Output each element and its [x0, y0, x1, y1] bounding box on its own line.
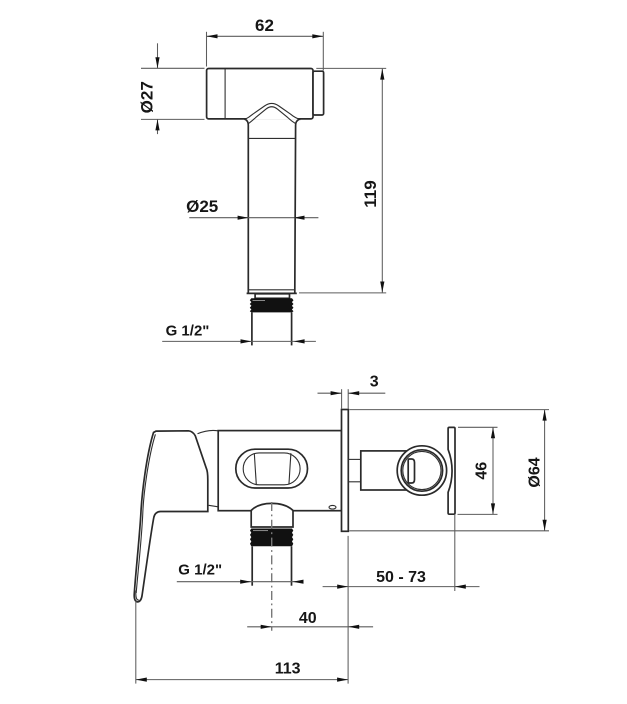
- svg-text:Ø27: Ø27: [137, 81, 156, 113]
- svg-text:46: 46: [474, 462, 491, 480]
- svg-text:Ø64: Ø64: [527, 457, 544, 487]
- svg-text:50 - 73: 50 - 73: [376, 569, 426, 586]
- svg-text:119: 119: [361, 180, 380, 207]
- svg-text:62: 62: [255, 16, 274, 35]
- svg-text:Ø25: Ø25: [186, 197, 218, 216]
- svg-text:3: 3: [370, 374, 379, 391]
- svg-text:G 1/2": G 1/2": [178, 562, 222, 579]
- svg-text:40: 40: [299, 610, 317, 627]
- svg-text:G 1/2": G 1/2": [166, 323, 210, 340]
- svg-text:113: 113: [275, 661, 301, 678]
